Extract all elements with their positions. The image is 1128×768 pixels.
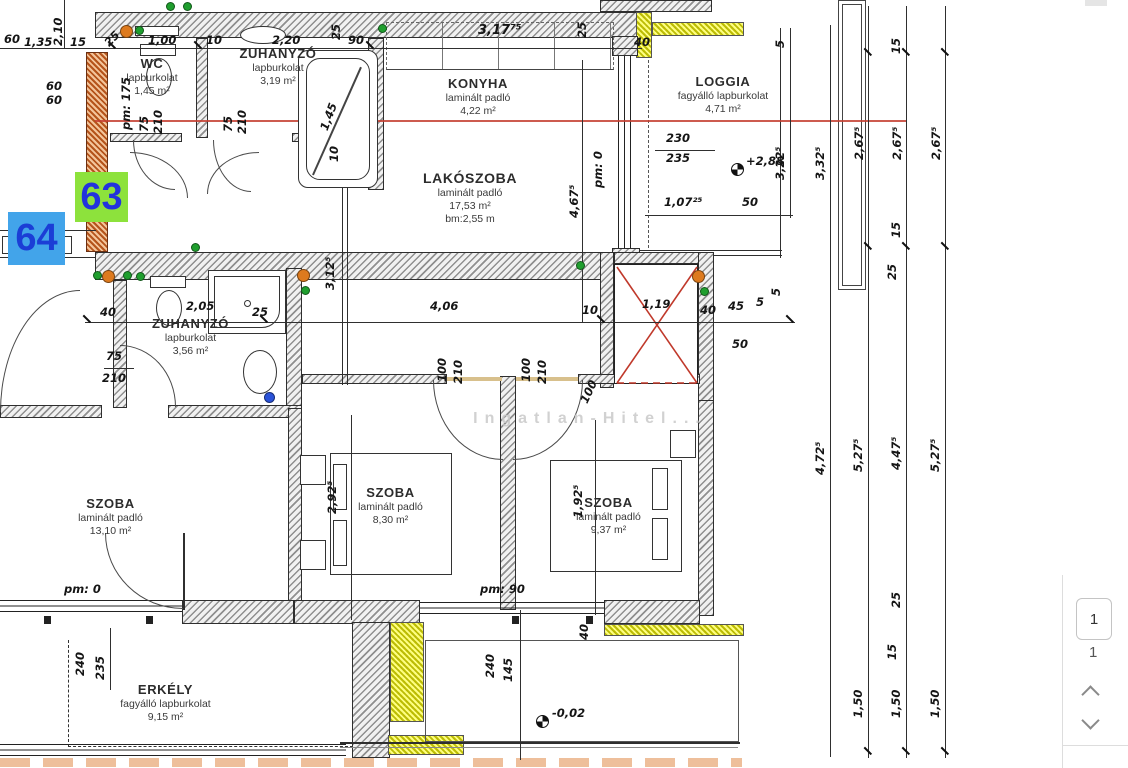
wall-segment — [302, 374, 447, 384]
railing-post — [146, 616, 153, 624]
dimension-label: pm: 0 — [592, 151, 605, 188]
dimension-label: 1,50 — [852, 690, 865, 718]
loggia-edge — [640, 250, 782, 251]
unit-badge-63: 63 — [75, 172, 128, 222]
dimension-label: 2,20 — [272, 34, 300, 47]
insulation-wall — [390, 622, 424, 722]
dimension-label: 15 — [890, 38, 903, 54]
wall-segment — [600, 0, 712, 12]
dimension-label: 75 — [106, 350, 122, 363]
dimension-label: 10 — [582, 304, 598, 317]
dimension-label: 2,67⁵ — [930, 127, 943, 160]
dimension-label: 3,12⁵ — [324, 257, 337, 290]
scrollbar-remnant — [1085, 0, 1107, 6]
wall-segment — [698, 400, 714, 616]
dimension-label: 1,07²⁵ — [664, 196, 702, 209]
room-label-room1: SZOBA laminált padló 13,10 m² — [38, 496, 183, 537]
dimension-label: 40 — [634, 36, 650, 49]
dimension-label: 40 — [578, 624, 591, 640]
dimension-label: 145 — [502, 658, 515, 682]
dimension-label: 90 — [348, 34, 364, 47]
dimension-label: 75 — [222, 116, 235, 132]
dimension-label: 240 — [74, 652, 87, 676]
dimension-label: 15 — [886, 644, 899, 660]
green-marker-dot — [183, 2, 192, 11]
dimension-line — [830, 25, 831, 757]
shaft-red-x — [615, 265, 699, 385]
dimension-label: 60 — [46, 80, 62, 93]
dimension-label: 210 — [536, 360, 549, 384]
nightstand — [300, 540, 326, 570]
green-marker-dot — [301, 286, 310, 295]
dimension-label: 50 — [742, 196, 758, 209]
dimension-label: 15 — [890, 222, 903, 238]
dimension-label: 1,50 — [929, 690, 942, 718]
wall-segment — [286, 268, 302, 410]
green-marker-dot — [136, 272, 145, 281]
room-label-kitchen: KONYHA laminált padló 4,22 m² — [400, 76, 556, 117]
dimension-label: pm: 90 — [480, 583, 525, 596]
orange-marker-dot — [102, 270, 115, 283]
shaft — [614, 264, 698, 384]
toilet-tank — [150, 276, 186, 288]
dimension-label: 2,10 — [52, 18, 65, 46]
dimension-label: 1,19 — [642, 298, 670, 311]
green-marker-dot — [166, 2, 175, 11]
page-number-button[interactable]: 1 — [1076, 598, 1112, 640]
door-arc — [105, 533, 183, 609]
dimension-label: 1,00 — [148, 34, 176, 47]
room-label-living: LAKÓSZOBA laminált padló 17,53 m² bm:2,5… — [388, 170, 552, 225]
dimension-label: 40 — [700, 304, 716, 317]
terrace-outline — [425, 640, 739, 742]
dimension-label: 1,35 — [24, 36, 52, 49]
railing-post — [44, 616, 51, 624]
dimension-label: 10 — [328, 146, 341, 162]
loggia-window — [618, 56, 634, 252]
room-label-wc: WC lapburkolat 1,45 m² — [90, 56, 214, 97]
dimension-label: pm: 175 — [120, 77, 133, 130]
dimension-label: pm: 0 — [64, 583, 101, 596]
chevron-down-icon[interactable] — [1081, 711, 1099, 729]
dimension-label: 40 — [100, 306, 116, 319]
green-marker-dot — [576, 261, 585, 270]
railing-post — [512, 616, 519, 624]
dimension-label: 5,27⁵ — [852, 439, 865, 472]
dimension-label: 2,92⁵ — [326, 481, 339, 514]
dimension-label: 210 — [452, 360, 465, 384]
window — [420, 602, 604, 616]
loggia-edge — [780, 28, 781, 258]
dimension-line — [906, 6, 907, 758]
orange-marker-dot — [120, 25, 133, 38]
dimension-label: 4,67⁵ — [568, 185, 581, 218]
watermark: Ingatlan-Hitel... — [430, 410, 750, 428]
dimension-label: 240 — [484, 654, 497, 678]
dimension-label: 210 — [236, 110, 249, 134]
dimension-label: 25 — [886, 264, 899, 280]
blue-marker-dot — [264, 392, 275, 403]
railing-post — [586, 616, 593, 624]
room-label-balcony: ERKÉLY fagyálló lapburkolat 9,15 m² — [93, 682, 238, 723]
dimension-label: 100 — [436, 358, 449, 382]
shower-drain — [244, 300, 251, 307]
dimension-label: 5,27⁵ — [929, 439, 942, 472]
dimension-line — [945, 6, 946, 758]
brick-dash-row — [0, 758, 742, 767]
wall-segment — [614, 252, 710, 264]
orange-marker-dot — [297, 269, 310, 282]
dimension-label: 5 — [770, 288, 783, 296]
level-value: -0,02 — [552, 707, 585, 720]
chevron-up-icon[interactable] — [1081, 685, 1099, 703]
green-marker-dot — [93, 271, 102, 280]
dimension-label: 235 — [94, 656, 107, 680]
balcony-railing — [0, 744, 346, 757]
orange-marker-dot — [692, 270, 705, 283]
dimension-line — [520, 610, 521, 760]
divider — [1063, 745, 1128, 746]
wall-segment — [352, 622, 390, 758]
page-edge — [1062, 575, 1063, 768]
dimension-label: 4,47⁵ — [890, 437, 903, 470]
dimension-label: 50 — [732, 338, 748, 351]
nightstand — [300, 455, 326, 485]
dimension-label: 210 — [102, 372, 126, 385]
dimension-label: 2,67⁵ — [853, 127, 866, 160]
dimension-label: 60 — [4, 33, 20, 46]
dimension-label: 25 — [576, 22, 589, 38]
level-marker-icon — [731, 163, 744, 176]
green-marker-dot — [378, 24, 387, 33]
dimension-label: 235 — [666, 152, 690, 165]
room-label-shower1: ZUHANYZÓ lapburkolat 3,19 m² — [222, 46, 334, 87]
dimension-label: 3,32⁵ — [814, 147, 827, 180]
insulation-wall — [652, 22, 744, 36]
dimension-label: 5 — [756, 296, 764, 309]
green-marker-dot — [700, 287, 709, 296]
unit-badge-64: 64 — [8, 212, 65, 265]
dimension-label: 5 — [774, 40, 787, 48]
dimension-label: 25 — [252, 306, 268, 319]
dimension-line — [868, 6, 869, 758]
dimension-label: 100 — [520, 358, 533, 382]
dimension-label: 4,72⁵ — [814, 442, 827, 475]
railing — [340, 747, 738, 748]
wall-segment — [604, 600, 700, 624]
nightstand — [670, 430, 696, 458]
dimension-label: 15 — [70, 36, 86, 49]
page-count: 1 — [1089, 644, 1097, 661]
dimension-line — [110, 628, 111, 690]
level-value: +2,88 — [746, 155, 784, 168]
dimension-label: 60 — [46, 94, 62, 107]
dimension-line — [582, 60, 583, 322]
dimension-label: 45 — [728, 300, 744, 313]
insulation-wall — [604, 624, 744, 636]
green-marker-dot — [123, 271, 132, 280]
dimension-label: 210 — [152, 110, 165, 134]
green-marker-dot — [191, 243, 200, 252]
dimension-label: 2,05 — [186, 300, 214, 313]
dimension-label: 1,92⁵ — [572, 485, 585, 518]
door-arc — [130, 152, 188, 198]
dimension-label: 10 — [206, 34, 222, 47]
railing — [340, 742, 740, 744]
wall-segment — [288, 408, 302, 620]
room-label-room2: SZOBA laminált padló 8,30 m² — [318, 485, 463, 526]
green-marker-dot — [135, 26, 144, 35]
dimension-label: 75 — [138, 116, 151, 132]
wall-segment — [168, 405, 302, 418]
room-label-room3: SZOBA laminált padló 9,37 m² — [536, 495, 681, 536]
floorplan-viewer: WC lapburkolat 1,45 m² ZUHANYZÓ lapburko… — [0, 0, 1128, 768]
level-marker-icon — [536, 715, 549, 728]
dimension-label: 25 — [330, 24, 343, 40]
dimension-label: 4,06 — [430, 300, 458, 313]
wall-segment — [182, 600, 294, 624]
dimension-label: 230 — [666, 132, 690, 145]
door-leaf — [183, 533, 185, 610]
red-pipe-line — [95, 120, 907, 122]
wall-segment — [294, 600, 420, 624]
pillow — [333, 520, 347, 566]
dimension-line — [104, 368, 134, 369]
room-label-shower2: ZUHANYZÓ lapburkolat 3,56 m² — [118, 316, 263, 357]
dimension-label: 3,17⁷⁵ — [478, 24, 521, 37]
dimension-label: 25 — [890, 592, 903, 608]
dimension-line — [790, 28, 791, 218]
room-label-loggia: LOGGIA fagyálló lapburkolat 4,71 m² — [648, 74, 798, 115]
dimension-label: 1,50 — [890, 690, 903, 718]
dimension-line — [645, 215, 793, 216]
dimension-label: 2,67⁵ — [891, 127, 904, 160]
door-arc — [0, 290, 80, 412]
